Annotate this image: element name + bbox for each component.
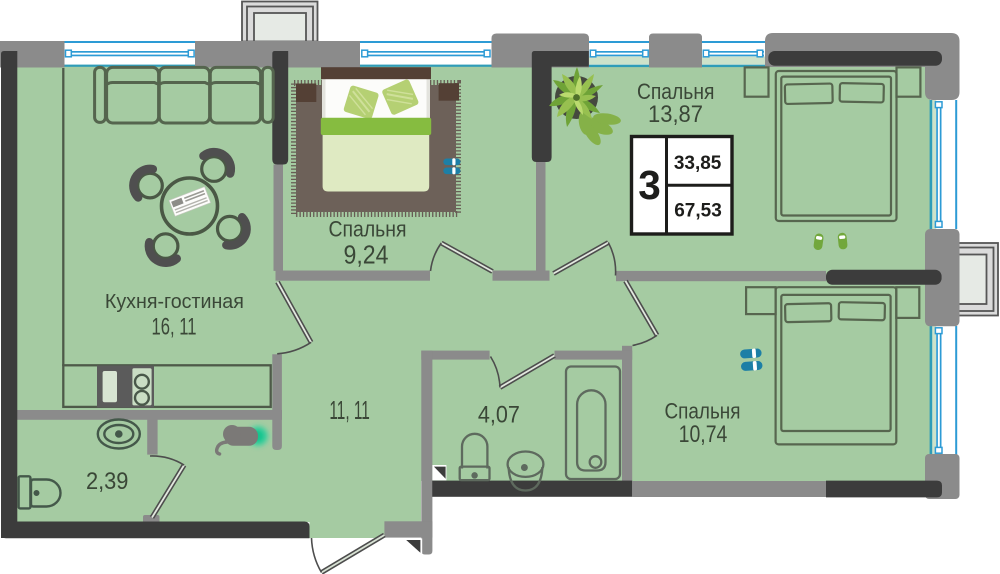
- svg-text:11, 11: 11, 11: [329, 395, 370, 425]
- svg-text:Кухня-гостиная: Кухня-гостиная: [105, 290, 244, 313]
- svg-text:Спальня: Спальня: [665, 398, 741, 423]
- svg-text:2,39: 2,39: [86, 468, 129, 495]
- svg-text:3: 3: [638, 162, 661, 208]
- svg-text:4,07: 4,07: [478, 402, 520, 429]
- svg-text:33,85: 33,85: [674, 153, 722, 174]
- svg-text:9,24: 9,24: [344, 239, 389, 269]
- svg-text:Спальня: Спальня: [329, 217, 407, 242]
- svg-text:13,87: 13,87: [648, 101, 703, 128]
- svg-text:10,74: 10,74: [679, 421, 728, 448]
- svg-text:16, 11: 16, 11: [152, 314, 197, 341]
- svg-text:67,53: 67,53: [674, 201, 722, 222]
